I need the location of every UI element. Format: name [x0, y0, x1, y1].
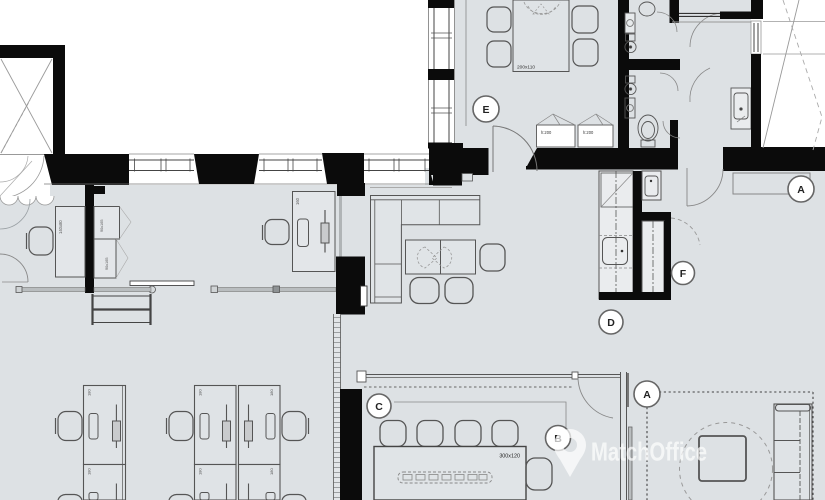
svg-text:180: 180: [87, 389, 92, 396]
svg-text:F: F: [680, 268, 687, 280]
svg-text:180: 180: [198, 389, 203, 396]
svg-text:90x165: 90x165: [100, 220, 104, 232]
svg-text:160: 160: [295, 197, 300, 205]
svg-text:E: E: [482, 104, 489, 116]
svg-text:140x80: 140x80: [58, 220, 63, 234]
svg-text:180: 180: [269, 468, 274, 475]
svg-text:A: A: [797, 184, 805, 196]
svg-text:D: D: [607, 317, 615, 329]
svg-text:90x165: 90x165: [105, 258, 109, 270]
svg-text:A: A: [643, 389, 651, 401]
svg-text:MatchOffice: MatchOffice: [591, 437, 707, 467]
svg-text:300x120: 300x120: [499, 454, 520, 460]
svg-text:200x110: 200x110: [517, 65, 535, 71]
svg-text:180: 180: [87, 468, 92, 475]
svg-text:h:200: h:200: [583, 130, 594, 135]
svg-text:180: 180: [198, 468, 203, 475]
svg-text:C: C: [375, 401, 383, 413]
svg-text:180: 180: [269, 389, 274, 396]
svg-text:h:200: h:200: [541, 130, 552, 135]
